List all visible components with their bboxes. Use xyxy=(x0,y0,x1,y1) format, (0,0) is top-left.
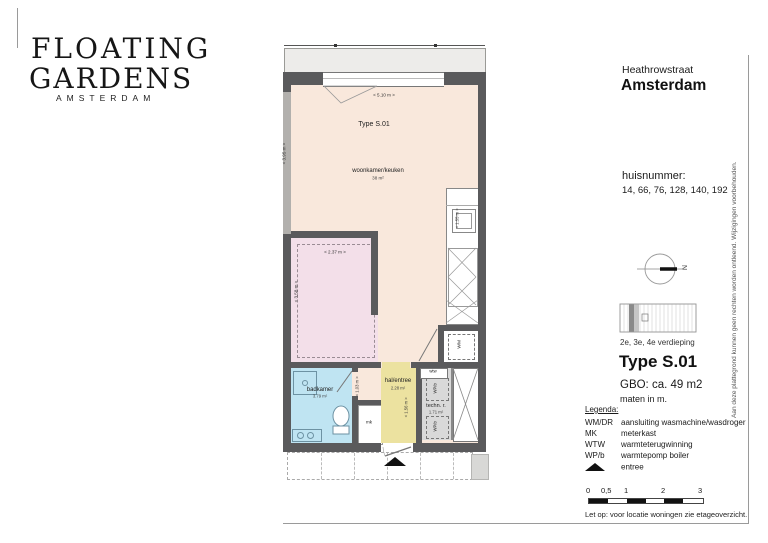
legend-desc: warmtepomp boiler xyxy=(621,451,689,460)
bedroom-dashed-outline xyxy=(297,244,375,358)
legend-row: WTWwarmteterugwinning xyxy=(585,440,693,449)
entree-arrow xyxy=(384,457,406,466)
city-name: Amsterdam xyxy=(621,77,706,95)
scale-segment xyxy=(664,499,683,503)
hall-tech-wall xyxy=(416,368,422,443)
facade-window xyxy=(323,72,444,87)
hall-area: 2.28 m² xyxy=(391,387,405,391)
frame-line-right xyxy=(748,55,749,524)
huisnummer-values: 14, 66, 76, 128, 140, 192 xyxy=(622,185,728,196)
tech-shaft-divider xyxy=(451,368,453,440)
wpb-label-bottom: WP/b xyxy=(434,421,438,431)
entree-triangle-icon xyxy=(585,463,605,471)
shaft xyxy=(453,368,480,442)
north-compass-icon xyxy=(633,248,693,292)
frame-line-left xyxy=(17,8,18,48)
tile-line xyxy=(420,453,421,479)
verdieping-label: 2e, 3e, 4e verdieping xyxy=(620,338,695,347)
bedroom-wall-right xyxy=(371,238,378,315)
legend-title: Legenda: xyxy=(585,405,618,414)
wall-bottom-right xyxy=(413,443,486,452)
railing-post xyxy=(434,44,437,47)
frame-line-bottom xyxy=(283,523,749,524)
tech-room-label: techn. r. xyxy=(426,403,446,409)
gallery-column xyxy=(471,454,489,480)
balcony-railing xyxy=(284,45,485,46)
scale-segment xyxy=(627,499,646,503)
shower-drain xyxy=(302,380,308,386)
bathroom-area: 3.79 m² xyxy=(313,395,327,399)
legend-abbr: MK xyxy=(585,429,621,438)
dim-left-depth: < 3.95 m > xyxy=(282,143,287,165)
mk-closet-floor xyxy=(358,405,383,445)
floorplan-page: FLOATING GARDENS AMSTERDAM xyxy=(0,0,768,543)
legend-row: WM/DRaansluiting wasmachine/wasdroger xyxy=(585,418,746,427)
hall-label: hal/entree xyxy=(385,378,411,384)
legend-row: MKmeterkast xyxy=(585,429,656,438)
legend-desc: warmteterugwinning xyxy=(621,440,693,449)
huisnummer-label: huisnummer: xyxy=(622,170,686,182)
legend-row: WP/bwarmtepomp boiler xyxy=(585,451,689,460)
railing-post xyxy=(334,44,337,47)
balcony xyxy=(284,48,486,74)
scale-tick: 2 xyxy=(661,486,665,495)
dim-bedroom-depth: < 3.58 m > xyxy=(294,281,299,303)
bedroom-wall-top xyxy=(291,231,378,238)
tile-line xyxy=(354,453,355,479)
logo-line2: GARDENS xyxy=(29,62,193,95)
gallery-walkway xyxy=(287,452,473,480)
vanity-faucet xyxy=(297,432,304,439)
tech-room-area: 1.71 m² xyxy=(429,411,443,415)
scale-tick: 0,5 xyxy=(601,486,611,495)
logo-line3: AMSTERDAM xyxy=(56,93,155,103)
wm-wall-top xyxy=(438,325,478,331)
gbo-label: GBO: ca. 49 m2 xyxy=(620,379,702,391)
living-room-area: 38 m² xyxy=(372,176,384,181)
units-note: maten in m. xyxy=(620,394,667,404)
wall-top-left xyxy=(291,72,323,85)
dim-bedroom-width: < 2.37 m > xyxy=(324,250,346,255)
vanity-faucet xyxy=(307,432,314,439)
wall-bottom-left xyxy=(283,443,381,452)
scale-tick: 1 xyxy=(624,486,628,495)
dim-top-width: < 5.10 m > xyxy=(373,93,395,98)
kitchen-hob xyxy=(448,248,478,307)
legend-abbr: WTW xyxy=(585,440,621,449)
bathroom-label: badkamer xyxy=(307,387,333,393)
bathroom-wall-right-stub xyxy=(352,368,358,372)
scale-note: Let op: voor locatie woningen zie etageo… xyxy=(585,510,747,519)
street-name: Heathrowstraat xyxy=(622,64,693,76)
legend-abbr: WP/b xyxy=(585,451,621,460)
scale-tick: 3 xyxy=(698,486,702,495)
wm-wall-left xyxy=(438,325,444,365)
tile-line xyxy=(321,453,322,479)
dim-bathroom: < 1.03 m > xyxy=(356,376,360,396)
logo-line1: FLOATING xyxy=(31,32,211,65)
legend-desc: entree xyxy=(621,462,644,471)
wall-top-right xyxy=(444,72,478,85)
legend-desc: aansluiting wasmachine/wasdroger xyxy=(621,418,746,427)
type-title: Type S.01 xyxy=(619,352,697,372)
living-room-label: woonkamer/keuken xyxy=(352,168,404,174)
wall-right xyxy=(478,72,486,452)
mk-label: mk xyxy=(366,420,372,425)
hall-doorway-floor xyxy=(382,362,410,368)
glazing-line xyxy=(323,78,444,79)
scale-tick: 0 xyxy=(586,486,590,495)
kitchen-cabinet-line xyxy=(446,205,478,206)
plan-type-label: Type S.01 xyxy=(358,121,390,128)
dim-kitchen: < 1.55 m > xyxy=(456,208,460,228)
scale-bar-rule xyxy=(588,498,704,504)
bathroom-wall-top xyxy=(291,362,381,368)
wm-label: WM xyxy=(457,340,462,349)
legend-abbr: WM/DR xyxy=(585,418,621,427)
wpb-label-top: WP/b xyxy=(434,383,438,393)
mk-wall-top xyxy=(358,400,381,405)
disclaimer-text: Aan deze plattegrond kunnen geen rechten… xyxy=(731,70,738,510)
legend-row: entree xyxy=(585,462,644,471)
tile-line xyxy=(453,453,454,479)
dim-hall: < 1.56 m > xyxy=(405,397,409,417)
legend-desc: meterkast xyxy=(621,429,656,438)
wtw-label: wtw xyxy=(429,370,436,374)
scale-segment xyxy=(589,499,608,503)
building-locator-icon xyxy=(617,300,699,338)
